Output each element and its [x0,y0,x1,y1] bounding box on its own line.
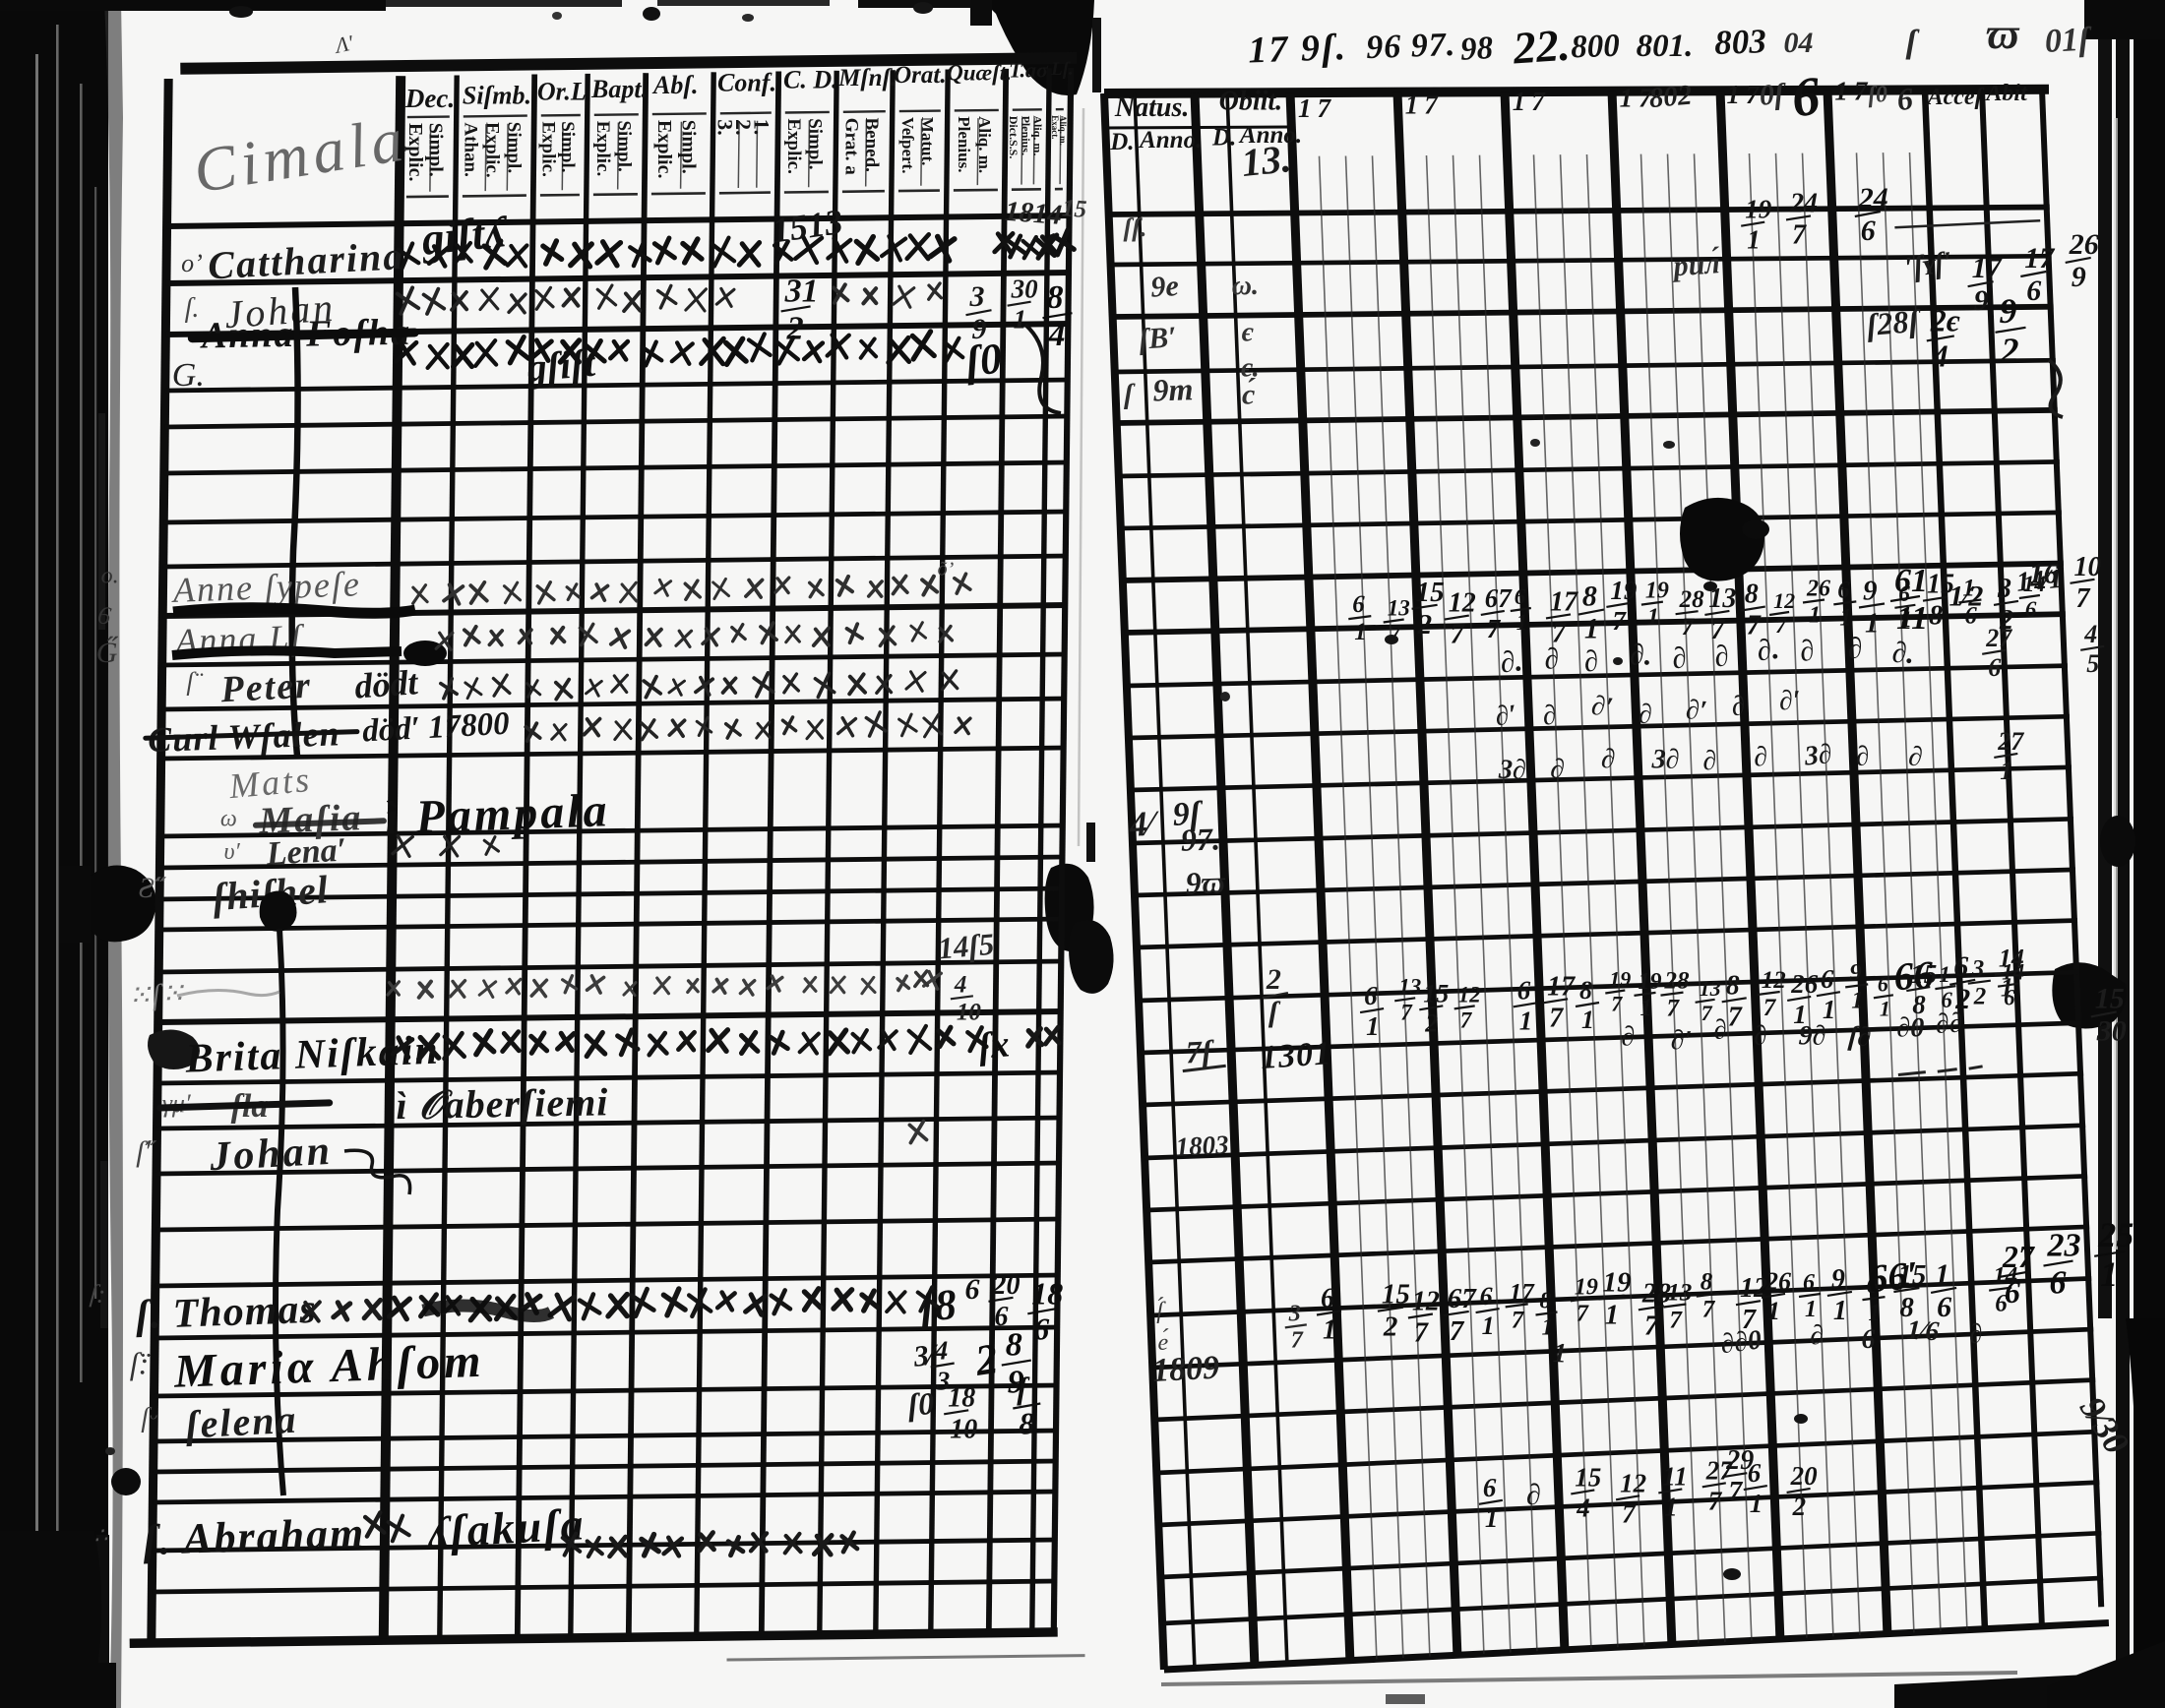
svg-text:67: 67 [1485,583,1514,613]
svg-text:25: 25 [2097,1215,2134,1254]
svg-text:9: 9 [2000,291,2017,331]
svg-text:7: 7 [1682,614,1696,640]
svg-text:ſ28ſ: ſ28ſ [1865,302,1924,342]
svg-text:Acceſ: Acceſ [1926,85,1985,110]
svg-text:10: 10 [950,1414,977,1444]
svg-text:ſᵕ: ſᵕ [141,1403,157,1433]
svg-text:8: 8 [1047,279,1064,316]
svg-text:Abit: Abit [1984,81,2028,106]
svg-text:7: 7 [1291,1327,1304,1353]
svg-text:2: 2 [1973,984,1987,1010]
svg-text:6: 6 [1515,584,1526,609]
svg-text:9: 9 [1849,959,1862,986]
svg-text:6: 6 [1878,971,1888,996]
svg-text:23: 23 [2047,1228,2081,1264]
svg-text:1: 1 [1354,619,1367,645]
svg-text:Explic.: Explic. [783,118,804,173]
svg-text:1: 1 [2000,757,2012,785]
svg-text:Obiit.: Obiit. [1219,86,1283,116]
svg-text:1⁄2: 1⁄2 [1948,580,1983,613]
svg-text:2є: 2є [1930,302,1960,337]
svg-text:∂.: ∂. [1755,633,1781,668]
svg-text:6: 6 [1321,1284,1334,1314]
svg-text:G.: G. [172,357,205,394]
svg-text:o.: o. [101,564,119,589]
svg-text:7: 7 [1622,1498,1637,1528]
svg-text:Anno.: Anno. [1138,127,1202,153]
svg-text:ʎſakuſa: ʎſakuſa [426,1498,587,1556]
svg-text:7: 7 [1611,992,1623,1016]
svg-text:∴: ∴ [93,1522,109,1548]
svg-text:3: 3 [969,280,985,313]
svg-text:7: 7 [1701,1001,1713,1025]
svg-text:1: 1 [1839,604,1852,631]
svg-text:υ′: υ′ [224,839,241,865]
svg-text:13.: 13. [1239,136,1292,185]
svg-text:26: 26 [1806,577,1830,602]
svg-text:Lena′: Lena′ [265,831,347,872]
svg-text:D.: D. [1211,124,1236,151]
svg-text:o’: o’ [181,249,203,277]
svg-text:4: 4 [934,1336,949,1366]
svg-text:98: 98 [1459,30,1494,68]
svg-text:29: 29 [1725,1445,1754,1476]
svg-text:7: 7 [1451,620,1465,650]
svg-text:Johan: Johan [208,1128,334,1181]
svg-text:7: 7 [1708,1486,1723,1515]
svg-text:1: 1 [1805,1297,1817,1322]
svg-text:1: 1 [1647,605,1659,631]
svg-text:7: 7 [1669,1308,1683,1334]
svg-text:∂′: ∂′ [1494,700,1518,732]
svg-text:Grat. a: Grat. a [841,118,862,176]
svg-text:ſ0: ſ0 [1867,82,1888,108]
svg-text:6: 6 [1895,81,1914,117]
svg-text:ì 𝒪aberſiemi: ì 𝒪aberſiemi [396,1079,609,1128]
svg-text:7: 7 [1792,219,1807,250]
svg-text:3: 3 [1971,956,1985,983]
svg-text:ì Pampala: ì Pampala [384,784,610,844]
svg-text:7: 7 [1400,1000,1413,1024]
svg-text:ſſ.: ſſ. [1124,213,1147,242]
svg-text:2: 2 [2001,331,2019,370]
svg-text:ſ0: ſ0 [906,1385,935,1423]
svg-text:13: 13 [1388,596,1410,621]
svg-text:19: 19 [1575,1274,1598,1300]
svg-text:7: 7 [1728,1002,1743,1032]
svg-text:Veſpert.: Veſpert. [898,117,917,173]
svg-text:12: 12 [1773,588,1795,613]
svg-text:1: 1 [1833,1296,1847,1326]
svg-text:Lſ.: Lſ. [1050,59,1074,80]
svg-text:∂: ∂ [1754,742,1768,773]
svg-text:∂: ∂ [1810,1320,1824,1351]
svg-text:6: 6 [1837,577,1850,603]
svg-text:ſ. Thomas: ſ. Thomas [135,1287,318,1338]
svg-text:1: 1 [2100,1254,2118,1294]
svg-text:17: 17 [1972,252,2003,284]
svg-text:5: 5 [2086,649,2099,678]
svg-text:15: 15 [1416,577,1445,608]
svg-text:1: 1 [1880,996,1890,1020]
svg-text:1: 1 [1366,1011,1380,1041]
svg-text:01ſ: 01ſ [2044,21,2094,60]
svg-text:C. D.: C. D. [783,66,838,94]
svg-text:26: 26 [1790,969,1819,999]
svg-text:Matut.: Matut. [918,117,937,166]
svg-text:18: 18 [948,1382,975,1413]
svg-text:∂∂0: ∂∂0 [1719,1324,1763,1360]
svg-text:1: 1 [1809,603,1821,629]
svg-text:1: 1 [1516,610,1528,635]
svg-text:7: 7 [1487,614,1502,643]
svg-text:7: 7 [1460,1007,1473,1032]
svg-text:Simpl.: Simpl. [557,121,578,172]
svg-text:∂: ∂ [1621,1021,1635,1052]
svg-text:Mſnſ.: Mſnſ. [837,65,897,91]
svg-text:8: 8 [1019,1406,1034,1441]
svg-text:ω.: ω. [1232,271,1259,301]
svg-text:12: 12 [1620,1468,1646,1497]
svg-text:4: 4 [1932,337,1948,373]
svg-text:6: 6 [1953,950,1968,983]
svg-text:ſ. Abraham: ſ. Abraham [142,1508,366,1564]
svg-text:∂.: ∂. [1891,637,1915,670]
svg-text:7: 7 [1775,613,1787,638]
svg-text:1: 1 [1584,613,1599,645]
svg-text:Simpl.: Simpl. [804,118,825,169]
svg-text:66′: 66′ [1866,1252,1920,1301]
svg-text:24: 24 [1789,188,1818,218]
svg-text:9: 9 [2072,261,2086,293]
svg-text:6: 6 [1988,653,2001,682]
svg-text:19: 19 [1610,576,1638,605]
svg-text:6: 6 [1517,975,1531,1005]
svg-text:7: 7 [1644,1310,1660,1341]
svg-text:6: 6 [1861,1324,1876,1355]
svg-text:1803: 1803 [1175,1129,1229,1162]
svg-text:7: 7 [1577,1301,1589,1326]
svg-text:1: 1 [1542,1315,1554,1341]
svg-text:17: 17 [1513,87,1551,116]
svg-text:Simpl.: Simpl. [613,121,634,172]
svg-text:14: 14 [1999,945,2024,973]
svg-text:1: 1 [1581,1006,1594,1034]
svg-text:рил́: рил́ [1669,246,1721,282]
svg-text:4: 4 [1048,317,1066,353]
svg-text:10: 10 [957,999,982,1025]
svg-text:∂: ∂ [1526,1479,1541,1511]
svg-text:Brita Niſkain: Brita Niſkain [184,1028,441,1082]
svg-text:4: 4 [954,971,967,998]
svg-text:7: 7 [1667,996,1681,1022]
svg-text:1: 1 [1747,225,1761,255]
svg-text:Bened.: Bened. [861,118,882,172]
svg-text:6: 6 [1861,214,1876,247]
svg-text:Explic.: Explic. [592,121,613,176]
svg-text:′ſʏſ′: ′ſʏſ′ [1903,246,1954,284]
svg-text:13: 13 [1667,1280,1692,1307]
svg-text:31: 31 [784,273,819,309]
svg-text:Natus.: Natus. [1114,92,1189,123]
svg-text:∂′: ∂′ [1670,1025,1692,1056]
svg-text:2: 2 [786,310,804,346]
svg-text:ſ8: ſ8 [918,1280,958,1330]
svg-text:T.aσ: T.aσ [1009,58,1049,83]
svg-text:15: 15 [1575,1462,1601,1492]
svg-text:⁙ſ⁙: ⁙ſ⁙ [127,977,186,1012]
svg-text:19: 19 [1745,195,1772,224]
svg-text:ſx: ſx [976,1023,1011,1067]
svg-text:27: 27 [1985,624,2012,652]
svg-text:800: 800 [1571,29,1621,66]
svg-text:Conf.: Conf. [717,68,776,96]
svg-text:1⁄6: 1⁄6 [1906,1315,1940,1348]
svg-text:1: 1 [1823,995,1836,1024]
svg-text:1: 1 [1664,1492,1678,1521]
svg-text:ſelena: ſelena [184,1397,298,1447]
svg-text:Plenius.: Plenius. [955,116,973,172]
svg-text:30: 30 [2096,1014,2127,1047]
svg-text:ſ.: ſ. [185,293,200,324]
svg-text:∂0: ∂0 [1896,1012,1924,1043]
svg-text:3∂: 3∂ [1802,739,1833,772]
svg-text:8: 8 [1582,580,1597,613]
svg-text:Athan.: Athan. [460,122,480,176]
svg-text:γμ′: γμ′ [162,1089,191,1118]
svg-text:4: 4 [2083,620,2097,648]
svg-text:1: 1 [1485,1503,1499,1533]
svg-text:13: 13 [1700,976,1721,1001]
svg-text:24: 24 [1858,182,1888,214]
svg-text:∂′: ∂′ [1778,685,1801,716]
svg-text:6: 6 [1364,981,1378,1010]
svg-text:17 9ſ.: 17 9ſ. [1248,27,1348,71]
svg-text:12: 12 [1762,967,1786,994]
svg-text:Aliq. m.: Aliq. m. [1031,115,1045,155]
svg-text:8: 8 [1929,601,1943,632]
svg-text:10: 10 [2074,552,2102,582]
svg-text:19: 19 [1639,969,1662,995]
svg-text:ſ0: ſ0 [963,335,1005,387]
svg-text:7: 7 [1763,995,1777,1021]
svg-text:18: 18 [1031,1275,1063,1311]
svg-text:7: 7 [1450,1315,1465,1347]
svg-text:19: 19 [1645,579,1669,604]
svg-text:19: 19 [1609,967,1631,992]
svg-text:ω: ω [220,806,237,831]
svg-text:∂.: ∂. [1499,644,1523,679]
svg-text:6: 6 [965,1273,980,1306]
svg-text:Dict.S.S.: Dict.S.S. [1007,116,1021,159]
svg-text:1: 1 [1519,1006,1533,1035]
svg-text:26: 26 [1764,1267,1791,1296]
svg-text:Bapt.: Bapt. [590,75,648,103]
svg-text:õ’: õ’ [938,559,955,580]
svg-text:15: 15 [1061,195,1087,223]
svg-text:dödt: dödt [353,662,420,705]
svg-text:17: 17 [1547,971,1576,1002]
svg-text:8: 8 [1006,1327,1022,1364]
svg-text:Aliq. m.: Aliq. m. [1058,115,1068,146]
svg-text:9: 9 [1863,576,1878,607]
svg-text:3∂: 3∂ [1650,744,1680,775]
svg-text:∂∂: ∂∂ [1935,1007,1963,1039]
svg-text:17: 17 [1510,1279,1536,1306]
svg-text:04: 04 [1784,27,1814,59]
svg-text:∂′: ∂′ [1590,691,1615,723]
svg-text:Explic.: Explic. [538,121,559,176]
svg-text:6: 6 [2026,274,2041,307]
svg-text:Explic.: Explic. [481,122,502,177]
svg-text:6: 6 [1352,591,1365,618]
svg-text:1: 1 [1865,608,1880,640]
svg-text:∂: ∂ [1968,1318,1984,1350]
svg-text:1: 1 [1552,1338,1567,1370]
svg-text:6: 6 [1480,1282,1493,1311]
svg-text:2: 2 [1266,963,1281,996]
svg-text:∂: ∂ [1639,700,1652,730]
svg-text:16: 16 [2029,558,2059,590]
svg-text:19: 19 [1603,1267,1632,1299]
svg-text:6: 6 [1033,1311,1049,1346]
svg-text:6: 6 [1821,964,1834,994]
svg-text:7: 7 [1549,1003,1564,1033]
svg-text:11: 11 [1662,1461,1688,1491]
svg-text:6: 6 [2050,1265,2067,1302]
svg-text:9: 9 [1974,284,1989,317]
svg-text:2: 2 [1424,1008,1438,1037]
svg-text:12: 12 [1412,1287,1440,1317]
svg-text:Siſmb.: Siſmb. [463,81,531,109]
svg-text:G̋: G̋ [96,637,119,669]
svg-text:D.: D. [1109,129,1134,155]
svg-text:1: 1 [1851,987,1864,1013]
svg-text:Orat.: Orat. [894,62,946,89]
svg-text:8: 8 [1701,1269,1713,1296]
svg-text:28: 28 [1664,968,1691,995]
svg-text:Dec.: Dec. [404,84,455,113]
svg-text:7: 7 [1512,1307,1525,1333]
svg-text:7: 7 [1414,1318,1429,1349]
svg-text:∂′: ∂′ [1685,695,1707,726]
svg-text:1: 1 [1605,1300,1620,1331]
svg-text:14ſ5: 14ſ5 [937,927,996,966]
svg-text:27: 27 [2002,1239,2036,1274]
svg-text:ſ̈:: ſ̈: [130,1345,151,1380]
svg-text:∂.: ∂. [1630,639,1652,671]
svg-text:12: 12 [1458,982,1481,1006]
svg-text:є: є [1242,318,1255,348]
svg-text:1: 1 [1939,962,1950,987]
svg-text:67: 67 [1448,1283,1478,1314]
svg-text:17: 17 [1405,91,1444,120]
svg-text:Mariα Αhſom: Mariα Αhſom [172,1335,485,1398]
svg-text:15: 15 [2095,982,2125,1014]
svg-text:12: 12 [1449,588,1476,619]
svg-text:3∂: 3∂ [1498,755,1527,786]
svg-text:61: 61 [1894,563,1928,599]
svg-text:66: 66 [1892,952,1935,1000]
svg-text:6: 6 [1803,1270,1815,1296]
svg-text:15: 15 [1423,979,1449,1007]
svg-text:Simpl.: Simpl. [425,123,447,177]
svg-text:1: 1 [1935,1258,1949,1291]
svg-text:8: 8 [1726,970,1740,1001]
svg-text:Peter: Peter [218,665,312,711]
svg-text:Abſ.: Abſ. [651,71,699,99]
svg-text:2: 2 [1792,1492,1807,1521]
svg-text:Simpl.: Simpl. [504,122,525,173]
svg-text:9т: 9т [1152,371,1194,407]
svg-text:1.: 1. [750,119,774,136]
svg-text:17: 17 [1298,93,1336,123]
svg-text:27: 27 [1997,727,2024,756]
svg-text:11: 11 [1896,600,1928,637]
svg-text:9: 9 [1831,1264,1845,1295]
svg-text:9е: 9е [1150,270,1180,303]
svg-text:9∂: 9∂ [1798,1020,1825,1052]
svg-text:1: 1 [1640,996,1652,1021]
svg-text:13: 13 [1398,974,1421,999]
svg-text:е́: е́ [1158,1329,1170,1356]
svg-text:3: 3 [1997,574,2011,604]
svg-text:12: 12 [1740,1273,1767,1304]
svg-text:9ϖ: 9ϖ [1185,864,1226,900]
svg-text:∂: ∂ [1544,642,1560,676]
svg-text:7: 7 [2076,583,2091,614]
svg-text:6: 6 [2025,597,2037,622]
svg-text:4: 4 [1576,1493,1590,1522]
svg-text:∂: ∂ [1600,744,1617,775]
svg-text:30: 30 [1011,274,1039,304]
svg-text:1814: 1814 [1004,196,1063,231]
svg-text:ſΒ′: ſΒ′ [1138,321,1178,356]
svg-text:1: 1 [1323,1315,1336,1346]
svg-text:20: 20 [1790,1461,1819,1491]
svg-text:Or.L: Or.L [537,78,587,106]
svg-text:1: 1 [1767,1297,1780,1325]
svg-text:ſ∂: ſ∂ [1847,1021,1872,1054]
svg-text:∂: ∂ [1753,1020,1768,1052]
svg-text:803: 803 [1714,22,1767,62]
svg-text:1301: 1301 [1260,1035,1332,1076]
svg-text:8: 8 [1540,1289,1552,1314]
svg-text:1: 1 [1750,1489,1763,1518]
svg-text:∂: ∂ [1847,632,1864,665]
svg-text:2: 2 [1383,1311,1398,1343]
svg-text:6: 6 [2005,1274,2020,1310]
svg-text:15: 15 [1382,1279,1410,1311]
svg-text:8: 8 [1745,579,1759,610]
svg-text:с́: с́ [1242,377,1256,410]
svg-text:28: 28 [1679,586,1705,613]
svg-text:∂: ∂ [1702,746,1717,776]
svg-text:20: 20 [992,1270,1021,1301]
svg-text:Explic.: Explic. [653,120,675,178]
svg-text:17: 17 [1550,586,1578,617]
svg-text:802: 802 [1647,80,1693,115]
svg-text:1: 1 [1869,1300,1882,1326]
svg-text:7: 7 [1728,1477,1743,1507]
svg-text:97.: 97. [1180,821,1220,857]
svg-text:22.: 22. [1511,20,1572,74]
svg-text:ſ:: ſ: [89,1279,106,1309]
svg-text:26: 26 [2069,228,2099,261]
svg-text:801.: 801. [1637,29,1694,64]
svg-text:Plenius.: Plenius. [1019,116,1032,155]
svg-text:3: 3 [1288,1301,1301,1326]
